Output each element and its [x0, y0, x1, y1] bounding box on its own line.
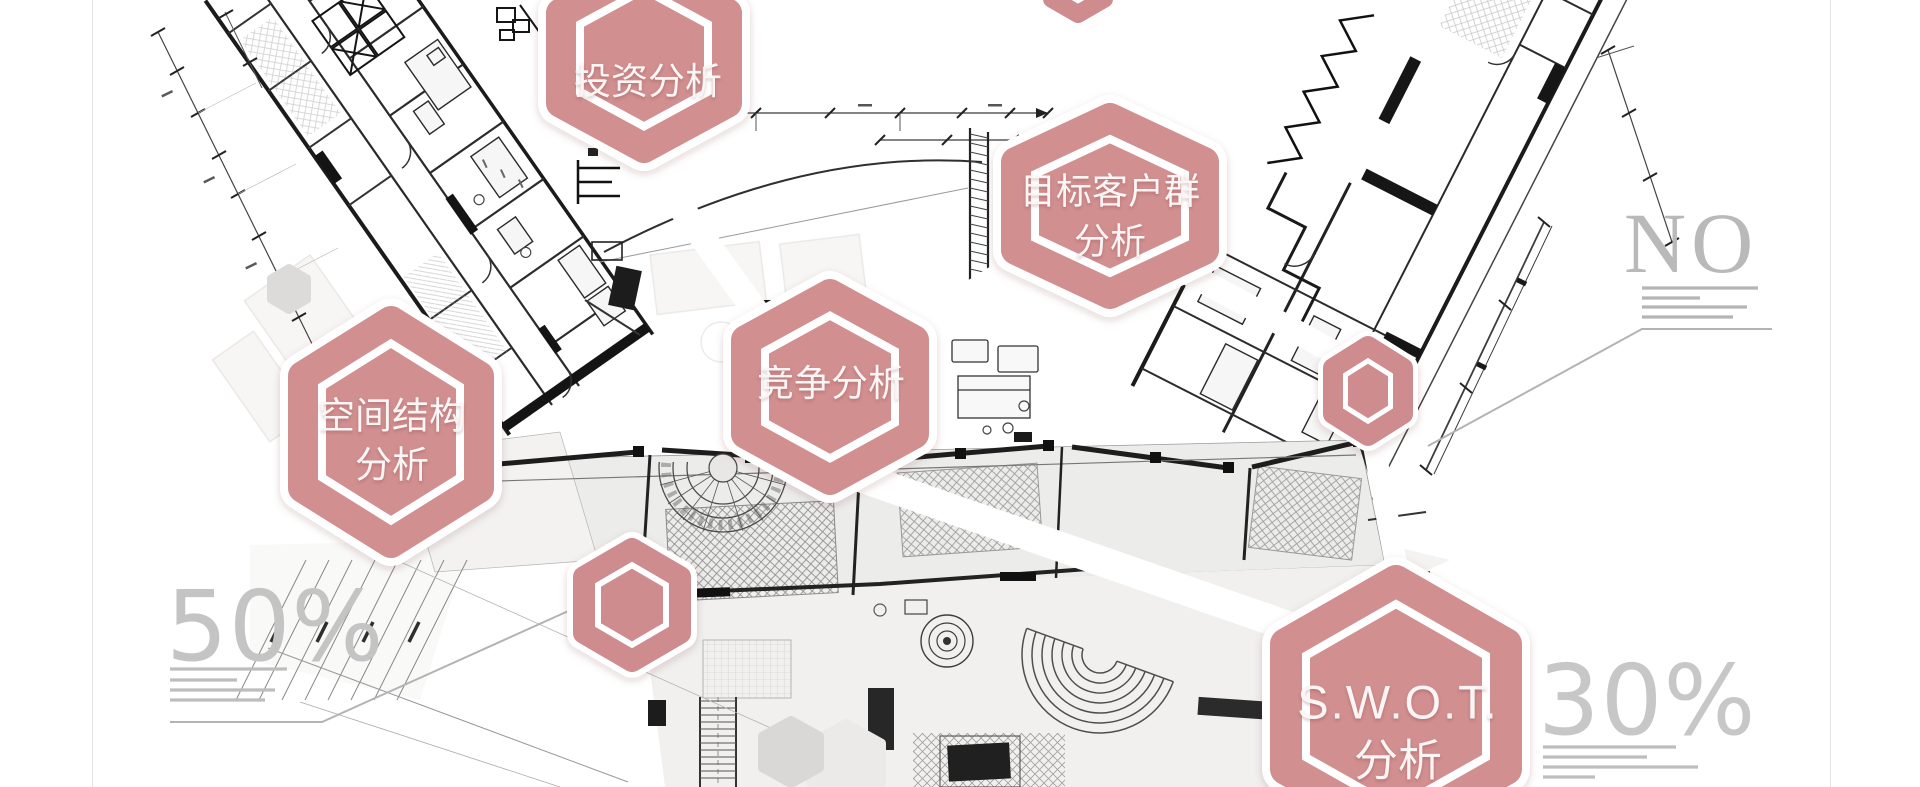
stat-fifty-percent: 50%	[166, 578, 385, 675]
stat-no-label: NO	[1624, 200, 1758, 286]
hexagon-label-target-customers: 目标客户群 分析	[1020, 168, 1200, 265]
hexagon-label-investment: 投资分析	[574, 58, 722, 106]
hexagon-label-text: 空间结构	[318, 393, 466, 440]
slide-canvas: 投资分析 目标客户群 分析 竞争分析 空间结构 分析 S.W.O.T. 分析 5…	[0, 0, 1920, 787]
hexagon-small-empty-right	[1333, 346, 1403, 436]
hexagon-label-text: S.W.O.T.	[1297, 673, 1498, 732]
slide-left-edge	[92, 0, 93, 787]
hexagon-label-text: 分析	[1297, 734, 1498, 787]
hexagon-label-text: 分析	[1020, 218, 1200, 266]
stat-thirty-percent: 30%	[1538, 652, 1757, 749]
hexagon-label-swot: S.W.O.T. 分析	[1297, 673, 1498, 787]
leader-line-no	[1428, 329, 1772, 446]
stat-underlines-no	[1642, 288, 1758, 317]
hexagon-label-spatial-structure: 空间结构 分析	[318, 393, 466, 490]
slide-right-edge	[1830, 0, 1831, 787]
hexagon-small-top-edge	[1052, 0, 1104, 14]
hexagon-small-empty-left	[584, 549, 680, 661]
hexagon-label-text: 分析	[318, 442, 466, 489]
hexagon-label-text: 目标客户群	[1020, 168, 1200, 216]
hexagon-label-competition: 竞争分析	[757, 360, 905, 408]
hexagon-label-text: 竞争分析	[757, 360, 905, 408]
hexagon-label-text: 投资分析	[574, 58, 722, 106]
